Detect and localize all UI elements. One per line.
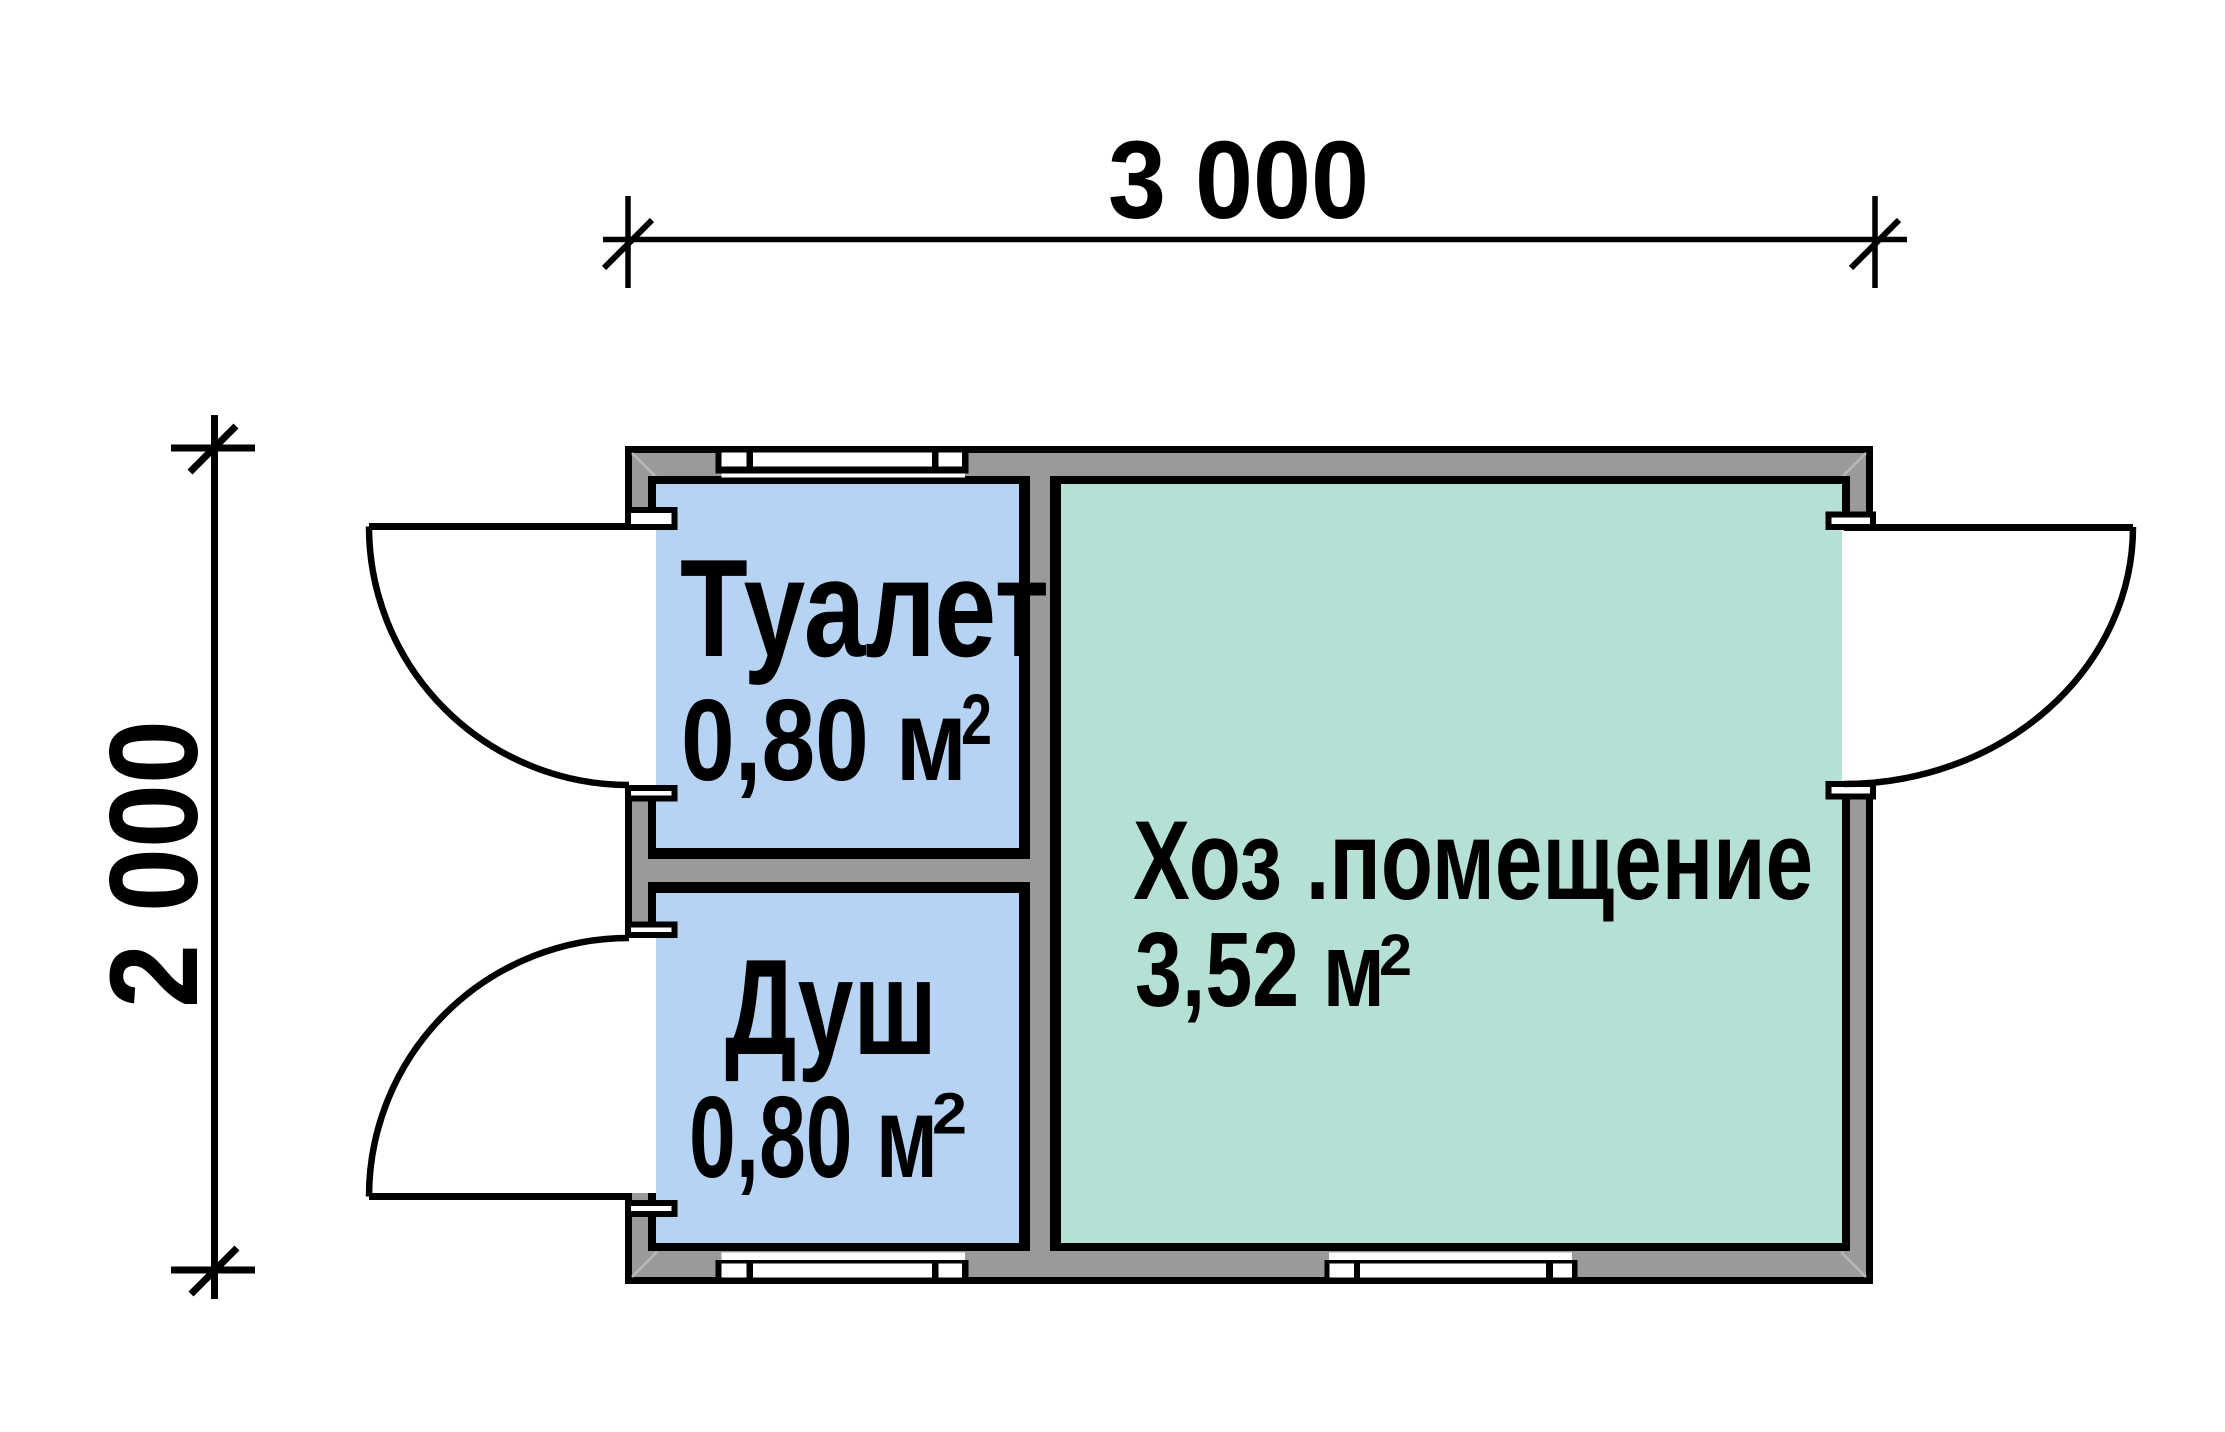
svg-text:2 000: 2 000 [85,720,224,1008]
svg-text:Туалет: Туалет [680,531,1049,686]
svg-text:0,80 м: 0,80 м [689,1072,938,1202]
svg-text:3 000: 3 000 [1108,119,1369,242]
svg-text:2: 2 [932,1082,967,1147]
svg-text:Хоз .помещение: Хоз .помещение [1133,798,1813,923]
svg-text:2: 2 [1379,923,1412,988]
svg-text:3,52 м: 3,52 м [1135,911,1385,1029]
svg-text:2: 2 [961,681,992,760]
svg-text:Душ: Душ [725,931,937,1083]
svg-text:0,80 м: 0,80 м [681,675,967,805]
